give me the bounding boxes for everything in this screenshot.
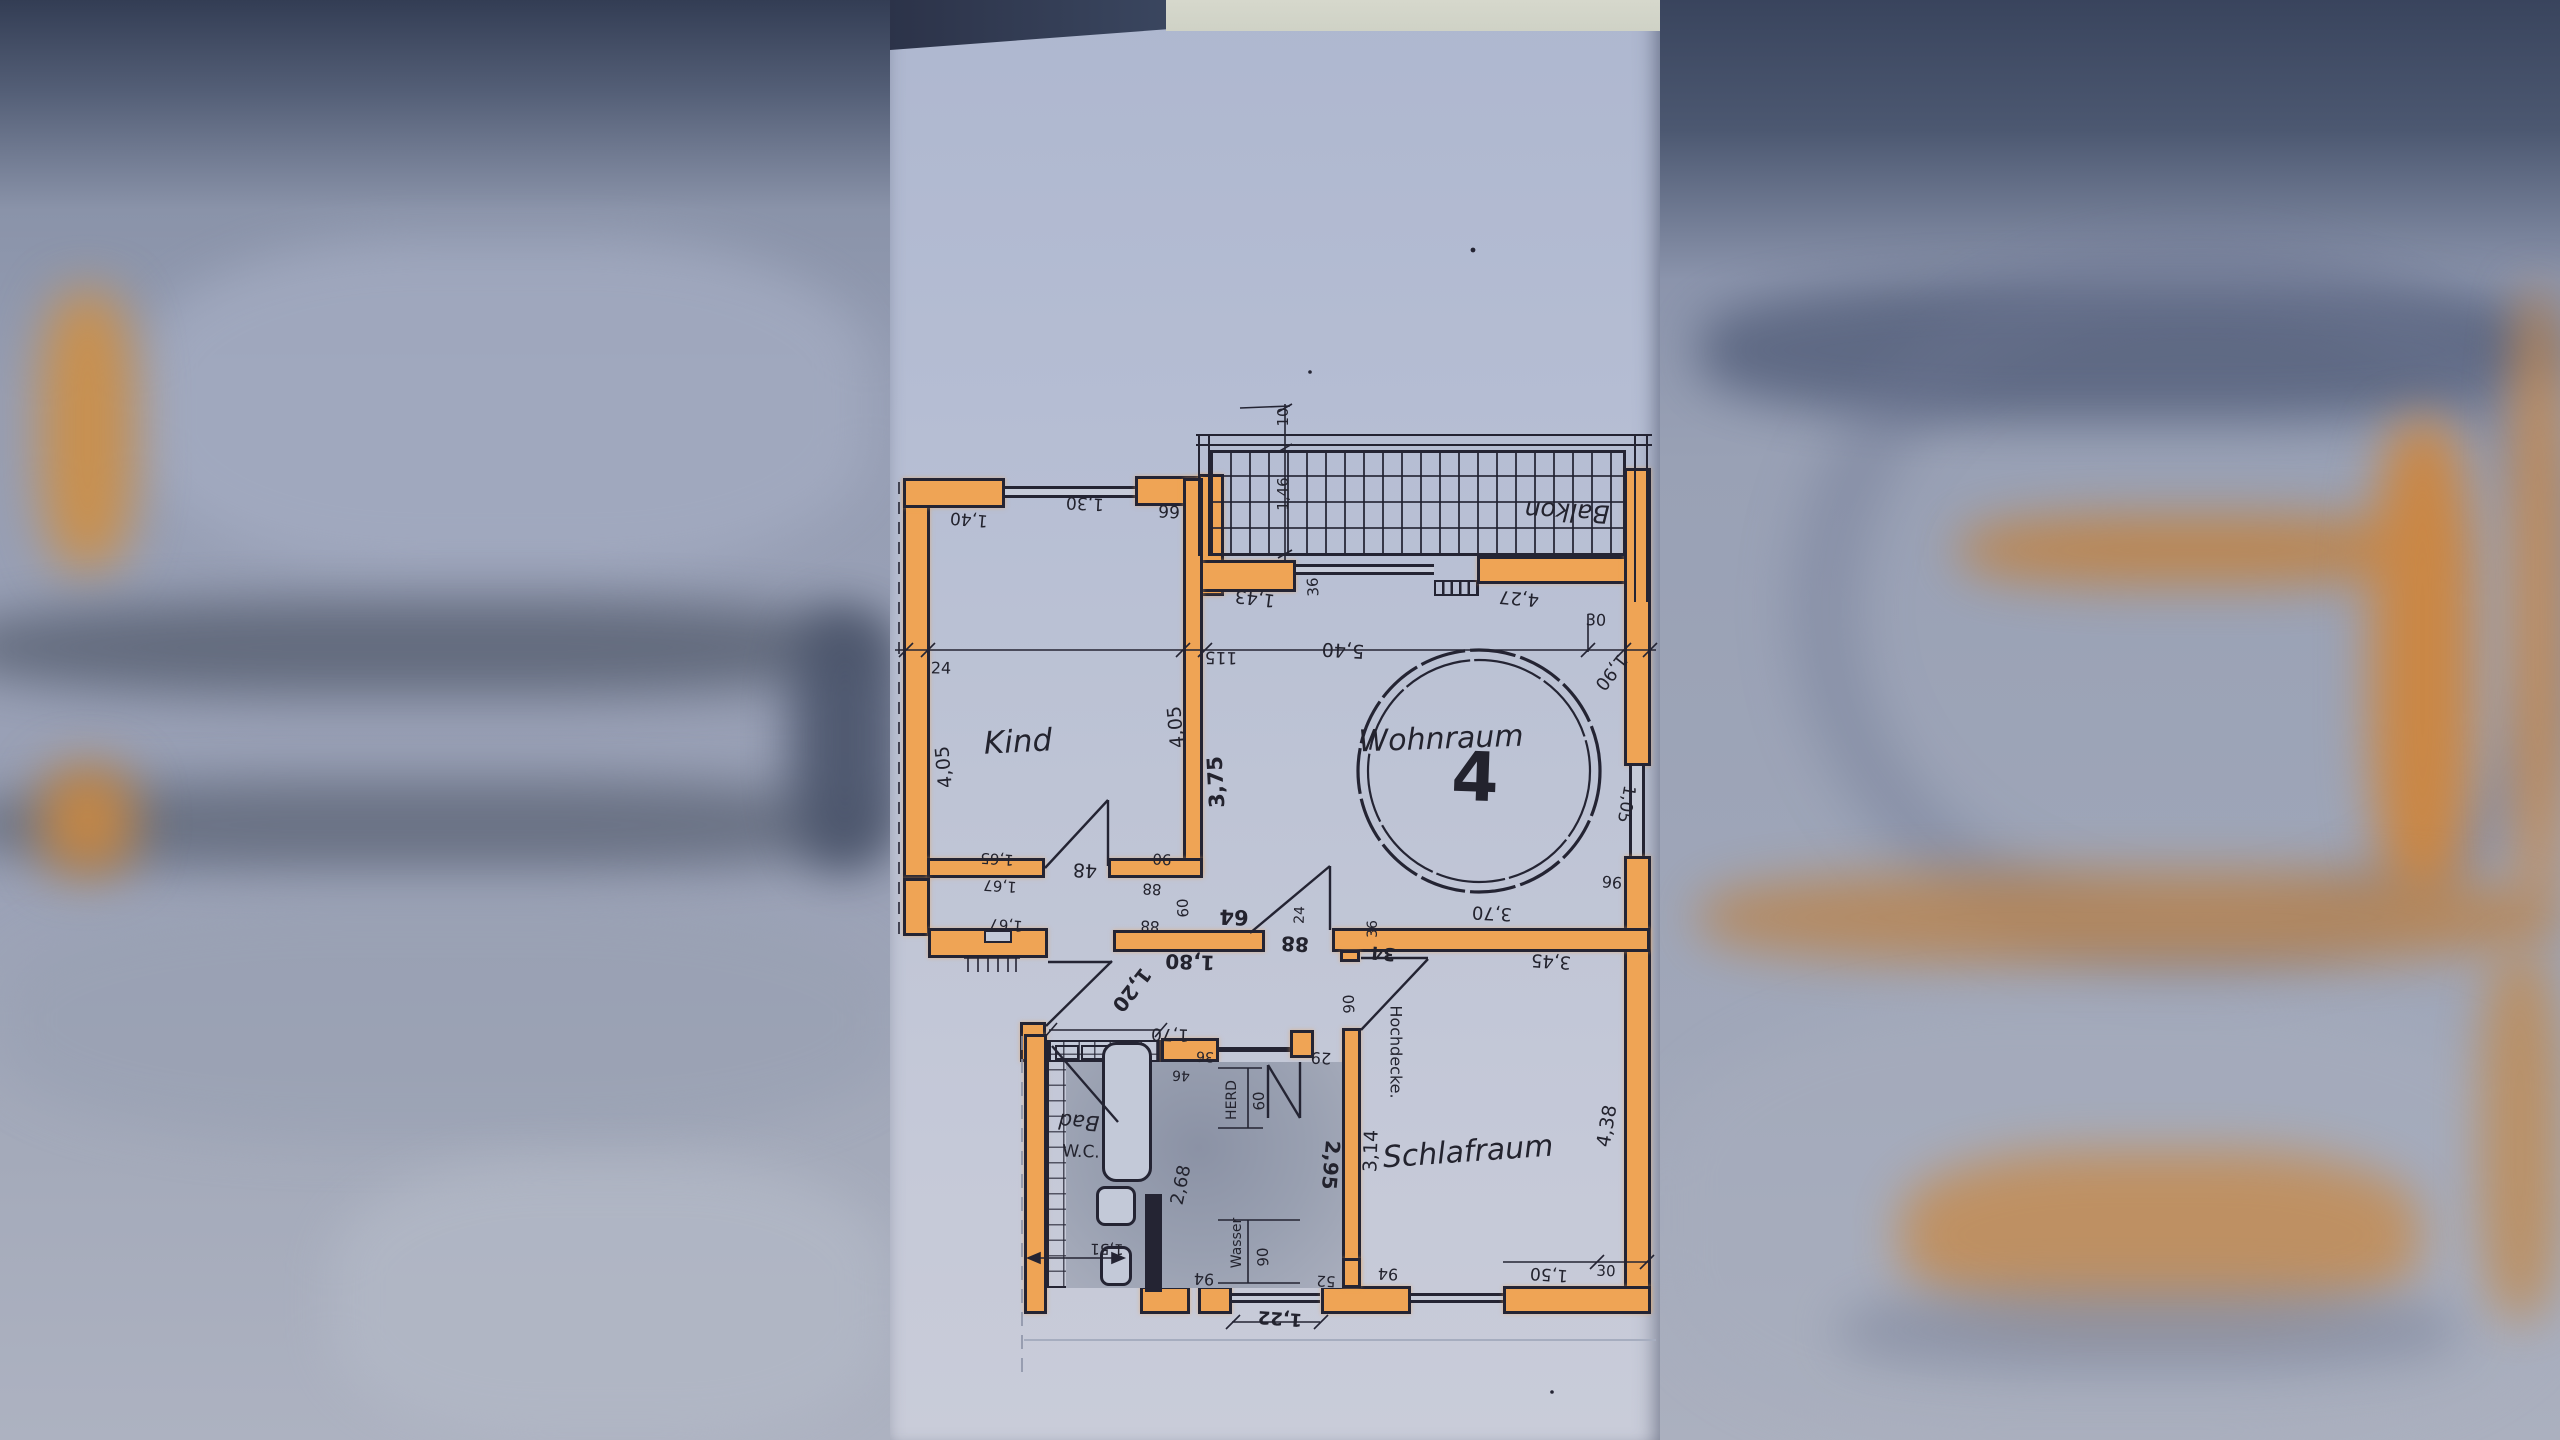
dim-label: 1,50 — [1529, 1263, 1568, 1286]
dim-label: 30 — [1585, 610, 1606, 630]
dim-label: 3,75 — [1203, 755, 1230, 808]
dim-label: 2,95 — [1317, 1139, 1345, 1190]
room-label-balkon: Balkon — [1524, 495, 1610, 528]
dim-label: 29 — [1310, 1048, 1331, 1068]
dim-label: 48 — [1072, 858, 1097, 881]
dim-label: 3,70 — [1471, 901, 1512, 924]
dimension-line-counter — [1045, 1023, 1167, 1037]
dim-label: 1,46 — [1274, 477, 1292, 510]
dim-label: 36 — [1196, 1048, 1215, 1065]
fixture-label-herd: HERD — [1224, 1080, 1240, 1120]
dim-label: 88 — [1140, 917, 1160, 936]
dim-label: 1,70 — [1151, 1023, 1190, 1044]
dim-label: 1,40 — [949, 507, 988, 530]
dim-label: 115 — [1205, 647, 1238, 668]
dim-label: 5,40 — [1321, 638, 1364, 662]
dim-label: 1,67 — [983, 876, 1018, 896]
dim-label: 1,51 — [1090, 1240, 1124, 1259]
dim-label: 34 — [1370, 941, 1397, 964]
dim-label: 90 — [1254, 1247, 1273, 1267]
dim-label: 90 — [1152, 850, 1172, 869]
dim-label: 3,45 — [1530, 949, 1571, 973]
dim-label: 36 — [1304, 577, 1323, 597]
entry-door-swing-icon — [1046, 961, 1112, 1026]
room-label-bad: Bad — [1058, 1109, 1100, 1136]
dim-label: 1,30 — [1066, 492, 1105, 514]
room-label-kind: Kind — [983, 722, 1053, 762]
dim-label: 64 — [1219, 904, 1249, 929]
dim-label: 46 — [1172, 1067, 1191, 1084]
fixture-label-wasser: Wasser — [1229, 1218, 1245, 1268]
wohnraum-door-swing-icon — [1250, 866, 1330, 933]
floorplan-photo: Kind Wohnraum 4 Schlafraum Balkon Bad W.… — [0, 0, 2560, 1440]
dim-label: 90 — [1340, 994, 1359, 1014]
dim-label: 4,27 — [1498, 586, 1540, 610]
dim-label: 4,05 — [1163, 705, 1189, 749]
dim-label: 36 — [1365, 920, 1381, 938]
dim-label: 94 — [1377, 1264, 1398, 1284]
kitchen-door-swing-icon — [1268, 1062, 1300, 1118]
dim-label: 24 — [931, 658, 952, 677]
plan-linework — [0, 0, 2560, 1440]
dim-label: 4,05 — [931, 745, 957, 789]
dim-label: 94 — [1193, 1269, 1214, 1289]
ink-specks — [1308, 248, 1554, 1394]
dim-label: 88 — [1280, 931, 1309, 956]
dim-label: 24 — [1292, 906, 1309, 924]
unit-number: 4 — [1450, 738, 1500, 819]
dimension-line-main — [895, 614, 1657, 657]
dim-label: 1,80 — [1165, 949, 1215, 975]
note-label-hochdecke: Hochdecke. — [1387, 1005, 1406, 1098]
dim-label: 88 — [1142, 880, 1162, 899]
room-label-wc: W.C. — [1062, 1141, 1100, 1162]
dim-label: 99 — [1158, 502, 1181, 523]
dim-label: 30 — [1596, 1262, 1616, 1281]
radiator-comb — [964, 958, 1020, 972]
dim-label: 1,67 — [989, 915, 1024, 935]
dim-label: 1,22 — [1257, 1306, 1303, 1330]
dimension-line-corner — [1503, 1255, 1654, 1269]
dim-label: 3,14 — [1359, 1129, 1382, 1172]
dim-label: 1,65 — [980, 849, 1015, 869]
dim-label: 60 — [1174, 898, 1193, 918]
dim-label: 60 — [1250, 1091, 1269, 1111]
dim-label: 52 — [1316, 1272, 1336, 1291]
dim-label: 96 — [1601, 872, 1623, 893]
dim-label: 10 — [1274, 407, 1292, 426]
